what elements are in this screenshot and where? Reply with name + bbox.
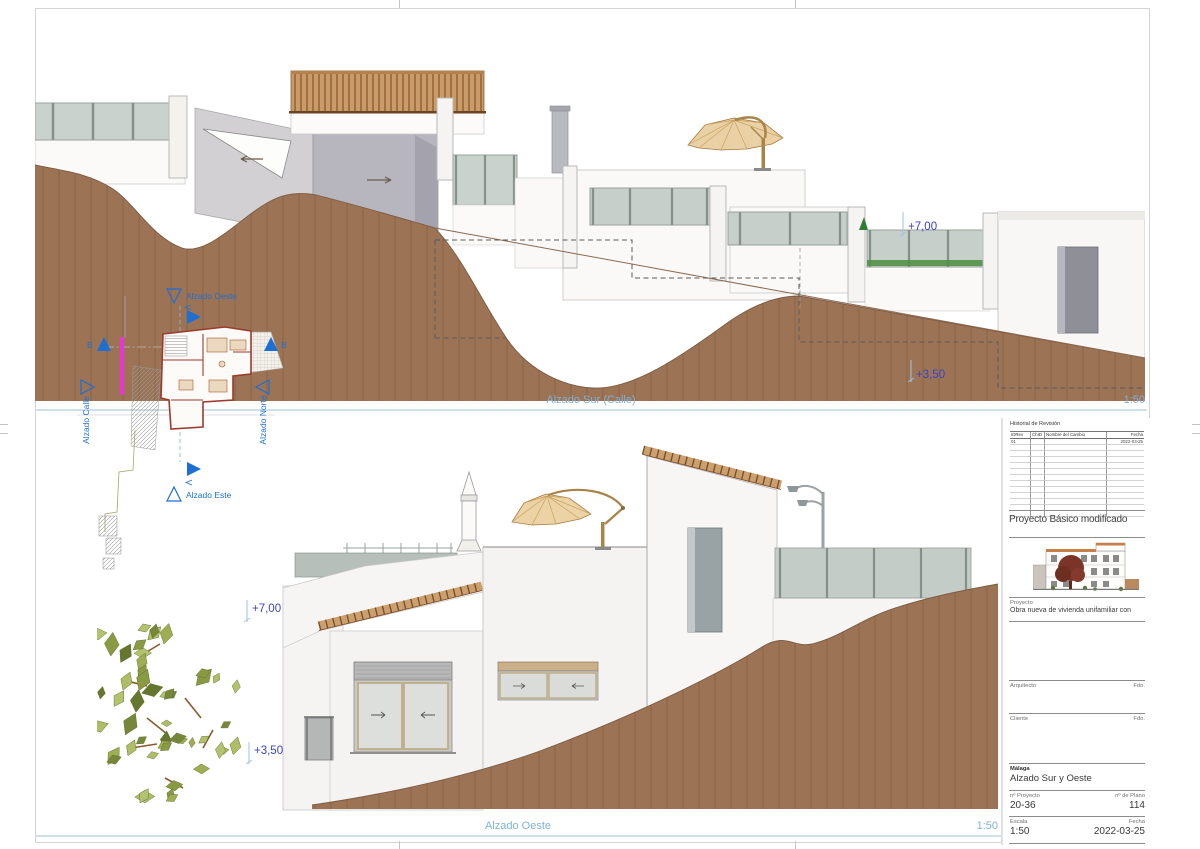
divider xyxy=(1009,713,1145,714)
divider xyxy=(1009,763,1145,764)
plan-body xyxy=(99,296,283,569)
level-markers-west: +7,00 +3,50 xyxy=(244,600,283,764)
date-value: 2022-03-25 xyxy=(1094,826,1145,837)
project-number: 20-36 xyxy=(1010,800,1036,811)
level-lower-south: +3,50 xyxy=(916,369,945,381)
marker-north-icon xyxy=(256,380,269,394)
chimney xyxy=(550,106,570,173)
level-lower-west: +3,50 xyxy=(254,745,283,757)
level-upper-west: +7,00 xyxy=(252,603,281,615)
drawing-west-scale: 1:50 xyxy=(930,820,998,832)
marker-street-icon xyxy=(81,380,94,394)
divider xyxy=(1009,843,1145,844)
divider xyxy=(1009,537,1145,538)
site-key-plan: Alzado Oeste B B Alzado Calle Alzado Nor… xyxy=(75,280,305,570)
arrow-small-icon xyxy=(185,305,191,310)
section-b-right-label: B xyxy=(281,340,287,350)
section-b-left-icon xyxy=(97,337,111,351)
project-number-label: nº Proyecto xyxy=(1010,793,1040,799)
revision-header-row: IDRevChIDNombre del CambioFecha xyxy=(1010,432,1144,439)
architect-sign-label: Fdo. xyxy=(1133,683,1145,689)
revision-table: IDRevChIDNombre del CambioFecha012022-03… xyxy=(1010,431,1144,517)
balconet xyxy=(304,717,334,760)
divider xyxy=(1009,621,1145,622)
window-pair xyxy=(498,662,598,700)
reg-tick-right-1 xyxy=(1192,424,1200,425)
terrace-walls xyxy=(563,166,989,311)
date-label: Fecha xyxy=(1129,819,1145,825)
architect-label: Arquitecto xyxy=(1010,683,1036,689)
arrow-small-icon xyxy=(186,480,192,485)
reg-tick-bottom-1 xyxy=(399,841,400,849)
chimney-west xyxy=(457,472,481,551)
sheet-title: Alzado Sur y Oeste xyxy=(1010,773,1092,784)
hedge-strip xyxy=(867,260,987,266)
marker-west-icon xyxy=(167,289,181,303)
project-thumbnail xyxy=(1033,541,1139,593)
title-block: Historial de Revisión IDRevChIDNombre de… xyxy=(1002,418,1151,845)
view-direction-icon xyxy=(187,462,201,476)
view-direction-icon xyxy=(187,310,201,324)
divider xyxy=(1009,790,1145,791)
marker-west-label: Alzado Oeste xyxy=(186,291,237,301)
tree xyxy=(87,622,243,806)
marker-north-label: Alzado Norte xyxy=(258,395,268,444)
divider xyxy=(1009,597,1145,598)
location-label: Málaga xyxy=(1010,766,1030,772)
scale-value: 1:50 xyxy=(1010,826,1029,837)
level-upper-south: +7,00 xyxy=(908,221,937,233)
reg-tick-bottom-2 xyxy=(795,841,796,849)
level-tick-icon xyxy=(244,600,250,622)
reg-tick-right-2 xyxy=(1192,433,1200,434)
reg-tick-top-2 xyxy=(795,0,796,8)
parasol xyxy=(688,117,783,171)
drawing-west-divider xyxy=(35,835,1001,837)
tiled-roof xyxy=(289,71,486,134)
client-sign-label: Fdo. xyxy=(1133,716,1145,722)
parasol-west xyxy=(512,490,625,550)
section-marker-bar xyxy=(120,337,124,395)
marker-east-label: Alzado Este xyxy=(186,490,232,500)
plan-number: 114 xyxy=(1129,800,1145,811)
drawing-south-scale: 1:50 xyxy=(1080,394,1145,406)
project-description: Obra nueva de vivienda unifamiliar con xyxy=(1010,607,1131,615)
client-label: Cliente xyxy=(1010,716,1028,722)
project-label: Proyecto xyxy=(1010,600,1033,606)
drawing-west-title: Alzado Oeste xyxy=(35,820,1001,832)
marker-street-label: Alzado Calle xyxy=(81,396,91,444)
marker-east-icon xyxy=(167,487,181,501)
level-tick-icon xyxy=(246,742,252,764)
revision-history-title: Historial de Revisión xyxy=(1010,421,1060,427)
stair xyxy=(165,336,187,356)
project-title: Proyecto Básico modificado xyxy=(1009,514,1149,525)
reg-tick-left-1 xyxy=(0,424,8,425)
divider xyxy=(1009,816,1145,817)
street-lamp xyxy=(787,486,825,550)
section-b-left-label: B xyxy=(87,340,93,350)
reg-tick-top-1 xyxy=(399,0,400,8)
divider xyxy=(1009,510,1145,511)
reg-tick-left-2 xyxy=(0,433,8,434)
scale-label: Escala xyxy=(1010,819,1027,825)
divider xyxy=(1009,680,1145,681)
plan-number-label: nº de Plano xyxy=(1115,793,1145,799)
window-large xyxy=(350,662,456,753)
driveway-hatch xyxy=(131,366,161,450)
